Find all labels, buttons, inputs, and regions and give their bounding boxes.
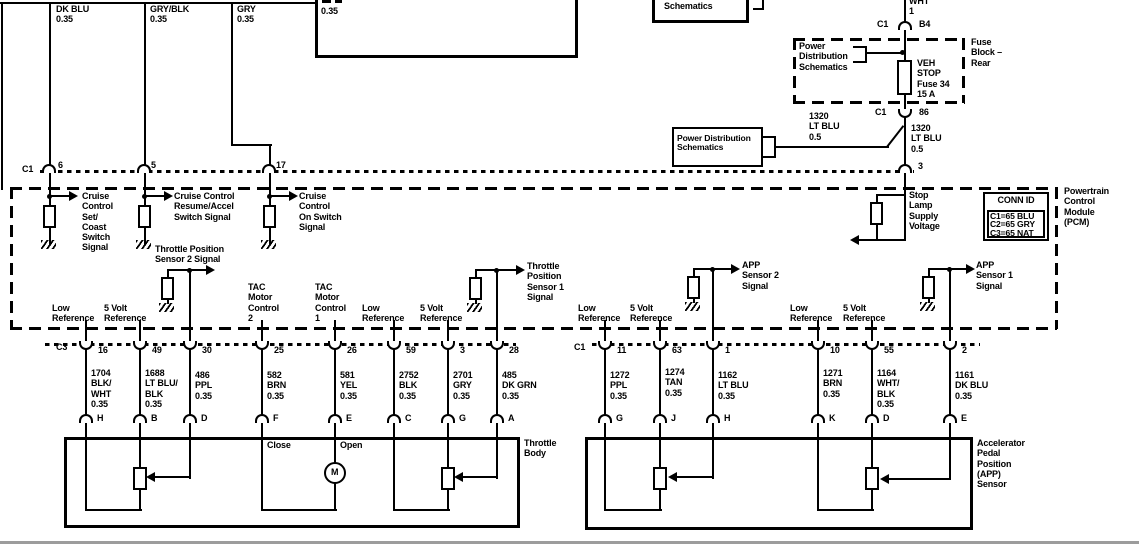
callout-lead <box>774 146 889 148</box>
clipped-text-fragment <box>335 0 342 3</box>
left-frame-line <box>1 2 3 190</box>
terminal-pin <box>255 414 269 423</box>
resistor <box>922 276 935 299</box>
wiper-arrow-icon <box>146 472 155 482</box>
app-wire <box>604 437 606 511</box>
terminal-letter: D <box>201 413 207 423</box>
wire-label-dk-blu: DK BLU 0.35 <box>56 4 89 25</box>
tb-wire <box>447 488 449 511</box>
pcm-stub <box>871 320 873 343</box>
terminal-pin <box>441 414 455 423</box>
connector-86-name: C1 <box>875 107 886 117</box>
connector-line-c1-top <box>40 170 914 173</box>
connector-pin <box>898 164 912 173</box>
junction-dot <box>900 50 905 55</box>
wire-spec: 1274 TAN 0.35 <box>665 367 684 398</box>
pin-number: 6 <box>58 160 63 170</box>
signal-arrow-icon <box>289 191 298 201</box>
tb-wire <box>334 437 336 463</box>
resistor <box>138 205 151 228</box>
app-wire <box>604 509 662 511</box>
terminal-letter: H <box>724 413 730 423</box>
terminal-letter: B <box>151 413 157 423</box>
wiper-arrow-icon <box>454 472 463 482</box>
pin-number: 55 <box>884 345 894 355</box>
tb-wire <box>496 437 498 479</box>
signal-line <box>858 239 906 241</box>
bottom-separator <box>0 541 1139 544</box>
pin-number: 63 <box>672 345 682 355</box>
terminal-letter: J <box>671 413 676 423</box>
pin-function: 5 Volt Reference <box>843 303 885 324</box>
signal-label-stop-lamp: Stop Lamp Supply Voltage <box>909 190 940 231</box>
pin-number: 30 <box>202 345 212 355</box>
harness-wire <box>189 269 191 438</box>
junction-dot <box>47 194 52 199</box>
wire-gry <box>231 3 233 146</box>
potentiometer <box>653 467 667 490</box>
junction-dot <box>267 194 272 199</box>
wire-spec: 1272 PPL 0.35 <box>610 370 629 401</box>
signal-arrow-icon <box>731 264 740 274</box>
signal-arrow-line <box>144 195 165 197</box>
tb-wire <box>393 509 450 511</box>
app-wire <box>659 489 661 511</box>
ground-icon <box>920 302 935 311</box>
wire-label-1320-left: 1320 LT BLU 0.5 <box>809 111 839 142</box>
pcm-border-top <box>10 187 1057 190</box>
terminal-pin <box>328 414 342 423</box>
connector-pin <box>706 341 720 350</box>
callout-lead <box>865 52 903 54</box>
signal-arrow-icon <box>69 191 78 201</box>
terminal-pin <box>706 414 720 423</box>
signal-arrow-icon <box>164 191 173 201</box>
connector-pin <box>328 341 342 350</box>
wiring-diagram: 0.35 Schematics DK BLU 0.35 GRY/BLK 0.35… <box>0 0 1139 549</box>
pin-number: 3 <box>460 345 465 355</box>
terminal-pin <box>79 414 93 423</box>
connector-pin <box>441 341 455 350</box>
wiper-arrow-icon <box>880 474 889 484</box>
ground-icon <box>41 240 56 249</box>
wire-spec: 2752 BLK 0.35 <box>399 370 418 401</box>
pin-number: 16 <box>98 345 108 355</box>
pcm-stub <box>261 320 263 343</box>
schematics-callout-label: Schematics <box>664 1 713 11</box>
pcm-stub <box>659 320 661 343</box>
pcm-stub <box>393 320 395 343</box>
potentiometer <box>865 467 879 490</box>
callout-lead-diagonal <box>886 125 905 148</box>
ground-icon <box>136 240 151 249</box>
connector-pin <box>387 341 401 350</box>
pin-function: Low Reference <box>52 303 94 324</box>
tb-wire <box>85 437 87 511</box>
clipped-text-fragment <box>322 0 331 3</box>
terminal-pin <box>490 414 504 423</box>
motor-letter: M <box>331 467 338 477</box>
fuse-block-callout: Power Distribution Schematics <box>799 41 848 72</box>
tb-wire <box>334 483 336 511</box>
terminal-pin <box>183 414 197 423</box>
pcm-name: Powertrain Control Module (PCM) <box>1064 186 1109 227</box>
signal-label-app2: APP Sensor 2 Signal <box>742 260 779 291</box>
terminal-pin <box>865 414 879 423</box>
tb-wire <box>261 437 263 511</box>
terminal-pin <box>387 414 401 423</box>
harness-wire <box>447 349 449 438</box>
wire-spec: 486 PPL 0.35 <box>195 370 212 401</box>
pcm-stub <box>817 320 819 343</box>
wire-label-gry: GRY 0.35 <box>237 4 256 25</box>
pin-number: 10 <box>830 345 840 355</box>
clipped-box-label: 0.35 <box>321 6 338 16</box>
potentiometer <box>441 467 455 490</box>
pin-number: 11 <box>617 345 626 355</box>
wire-spec: 2701 GRY 0.35 <box>453 370 472 401</box>
harness-wire <box>139 349 141 438</box>
signal-arrow-line <box>49 195 70 197</box>
terminal-pin <box>943 414 957 423</box>
terminal-letter: A <box>508 413 514 423</box>
pcm-stub <box>604 320 606 343</box>
terminal-pin <box>598 414 612 423</box>
fuse-block-border <box>962 38 965 103</box>
pin-number: 25 <box>274 345 284 355</box>
tb-wire <box>261 509 337 511</box>
throttle-body-label: Throttle Body <box>524 438 556 459</box>
wiper-line <box>154 476 191 478</box>
terminal-letter: H <box>97 413 103 423</box>
pin-function: 5 Volt Reference <box>420 303 462 324</box>
fuse-label: VEH STOP Fuse 34 15 A <box>917 58 949 99</box>
connector-pin-86 <box>898 109 912 118</box>
wiper-arrow-icon <box>668 472 677 482</box>
wiper-line <box>676 476 714 478</box>
harness-wire <box>393 349 395 438</box>
fuse-block-border <box>793 38 796 103</box>
resistor-stub <box>876 194 906 196</box>
pcm-border-right <box>1055 187 1058 329</box>
connector-pin <box>183 341 197 350</box>
app-wire <box>871 489 873 511</box>
signal-label-cruise-set: Cruise Control Set/ Coast Switch Signal <box>82 191 113 253</box>
connector-pin <box>137 164 151 173</box>
wire-spec: 1271 BRN 0.35 <box>823 368 842 399</box>
tb-wire <box>447 437 449 468</box>
open-label: Open <box>340 440 362 450</box>
harness-wire <box>712 268 714 438</box>
harness-wire <box>817 349 819 438</box>
pin-number: 26 <box>347 345 357 355</box>
pin-number: 28 <box>509 345 519 355</box>
resistor <box>687 276 700 299</box>
pin-function: Low Reference <box>362 303 404 324</box>
connector-c1-label: C1 <box>574 342 585 352</box>
signal-label-cruise-resume: Cruise Control Resume/Accel Switch Signa… <box>174 191 234 222</box>
signal-arrow-icon <box>206 265 215 275</box>
connector-86-terminal: 86 <box>919 107 929 117</box>
fuse-block-name: Fuse Block – Rear <box>971 37 1002 68</box>
connector-pin <box>653 341 667 350</box>
pin-function: Low Reference <box>790 303 832 324</box>
connector-pin <box>133 341 147 350</box>
harness-wire <box>85 349 87 438</box>
resistor <box>161 277 174 300</box>
clipped-top-box <box>315 0 578 58</box>
wire-label-wht: WHT 1 <box>909 0 929 17</box>
wire-spec: 1162 LT BLU 0.35 <box>718 370 748 401</box>
wire-spec: 1161 DK BLU 0.35 <box>955 370 988 401</box>
harness-wire <box>659 349 661 438</box>
callout-bracket <box>762 0 764 10</box>
connector-pin <box>42 164 56 173</box>
harness-wire <box>604 349 606 438</box>
wire-spec: 582 BRN 0.35 <box>267 370 286 401</box>
callout-bracket <box>865 46 867 63</box>
resistor <box>43 205 56 228</box>
conn-id-row: C3=65 NAT <box>990 229 1034 238</box>
connector-pin <box>262 164 276 173</box>
pin-number: 2 <box>962 345 967 355</box>
wiper-line <box>888 478 951 480</box>
pin-number: 1 <box>725 345 730 355</box>
harness-wire <box>871 349 873 438</box>
ground-icon <box>261 240 276 249</box>
pin-function: 5 Volt Reference <box>630 303 672 324</box>
wire-spec: 581 YEL 0.35 <box>340 370 357 401</box>
pin-function: TAC Motor Control 2 <box>248 282 279 323</box>
tb-wire <box>139 488 141 511</box>
ground-icon <box>685 302 700 311</box>
connector-pin <box>865 341 879 350</box>
app-wire <box>817 509 874 511</box>
pin-number: 17 <box>276 160 286 170</box>
signal-arrow-icon <box>850 235 859 245</box>
potentiometer <box>133 467 147 490</box>
app-sensor-label: Accelerator Pedal Position (APP) Sensor <box>977 438 1025 489</box>
terminal-pin <box>653 414 667 423</box>
harness-wire <box>261 349 263 438</box>
resistor <box>469 277 482 300</box>
connector-pin-b4 <box>898 21 912 30</box>
connector-pin <box>811 341 825 350</box>
terminal-pin <box>133 414 147 423</box>
signal-label-app1: APP Sensor 1 Signal <box>976 260 1013 291</box>
app-wire <box>712 437 714 479</box>
connector-pin <box>598 341 612 350</box>
terminal-letter: C <box>405 413 411 423</box>
connector-b4-name: C1 <box>877 19 888 29</box>
connector-b4-terminal: B4 <box>919 19 930 29</box>
wire-spec: 1704 BLK/ WHT 0.35 <box>91 368 111 409</box>
terminal-pin <box>811 414 825 423</box>
wire-wht <box>904 0 906 240</box>
app-sensor-box <box>585 437 973 530</box>
wire-spec: 485 DK GRN 0.35 <box>502 370 537 401</box>
signal-arrow-icon <box>516 265 525 275</box>
terminal-letter: E <box>346 413 352 423</box>
pcm-border-left <box>10 187 13 329</box>
signal-label-cruise-on: Cruise Control On Switch Signal <box>299 191 342 232</box>
signal-label-tp2: Throttle Position Sensor 2 Signal <box>155 244 224 265</box>
wire-label-1320-right: 1320 LT BLU 0.5 <box>911 123 941 154</box>
signal-arrow-icon <box>966 264 975 274</box>
close-label: Close <box>267 440 291 450</box>
harness-wire <box>334 349 336 438</box>
conn-id-title: CONN ID <box>983 195 1049 205</box>
tb-wire <box>393 437 395 511</box>
terminal-letter: E <box>961 413 967 423</box>
app-wire <box>659 437 661 468</box>
pcm-stub <box>85 320 87 343</box>
signal-label-tp1: Throttle Position Sensor 1 Signal <box>527 261 564 302</box>
pin-function: Low Reference <box>578 303 620 324</box>
resistor <box>263 205 276 228</box>
connector-c3-label: C3 <box>56 342 67 352</box>
app-wire <box>817 437 819 511</box>
pin-function: TAC Motor Control 1 <box>315 282 346 323</box>
terminal-letter: G <box>616 413 623 423</box>
tb-wire <box>85 509 142 511</box>
connector-c1-label: C1 <box>22 164 33 174</box>
connector-pin <box>79 341 93 350</box>
wiper-line <box>462 476 498 478</box>
connector-line-c1-bottom <box>592 343 980 346</box>
pin-number: 49 <box>152 345 162 355</box>
wire-gry-bend <box>231 144 272 146</box>
power-distribution-label: Power Distribution Schematics <box>677 134 751 152</box>
resistor <box>870 202 883 225</box>
fuse-symbol <box>897 60 912 95</box>
fuse-block-border <box>793 101 965 104</box>
terminal-letter: G <box>459 413 466 423</box>
ground-icon <box>467 303 482 312</box>
pin-number: 5 <box>151 160 156 170</box>
pcm-border-bottom <box>10 327 1057 330</box>
tb-wire <box>189 437 191 479</box>
pin-number: 59 <box>406 345 416 355</box>
harness-wire <box>949 268 951 438</box>
pin-number: 3 <box>918 161 923 171</box>
junction-dot <box>142 194 147 199</box>
terminal-letter: K <box>829 413 835 423</box>
ground-icon <box>159 303 174 312</box>
terminal-letter: F <box>273 413 278 423</box>
wire-spec: 1688 LT BLU/ BLK 0.35 <box>145 368 178 409</box>
connector-pin <box>255 341 269 350</box>
app-wire <box>871 437 873 468</box>
terminal-letter: D <box>883 413 889 423</box>
pcm-stub <box>447 320 449 343</box>
pcm-stub <box>139 320 141 343</box>
pcm-stub <box>334 320 336 343</box>
tb-wire <box>139 437 141 468</box>
signal-arrow-line <box>269 195 290 197</box>
harness-wire <box>496 269 498 438</box>
connector-pin <box>490 341 504 350</box>
app-wire <box>949 437 951 480</box>
connector-pin <box>943 341 957 350</box>
wire-label-gry-blk: GRY/BLK 0.35 <box>150 4 189 25</box>
wire-spec: 1164 WHT/ BLK 0.35 <box>877 368 899 409</box>
